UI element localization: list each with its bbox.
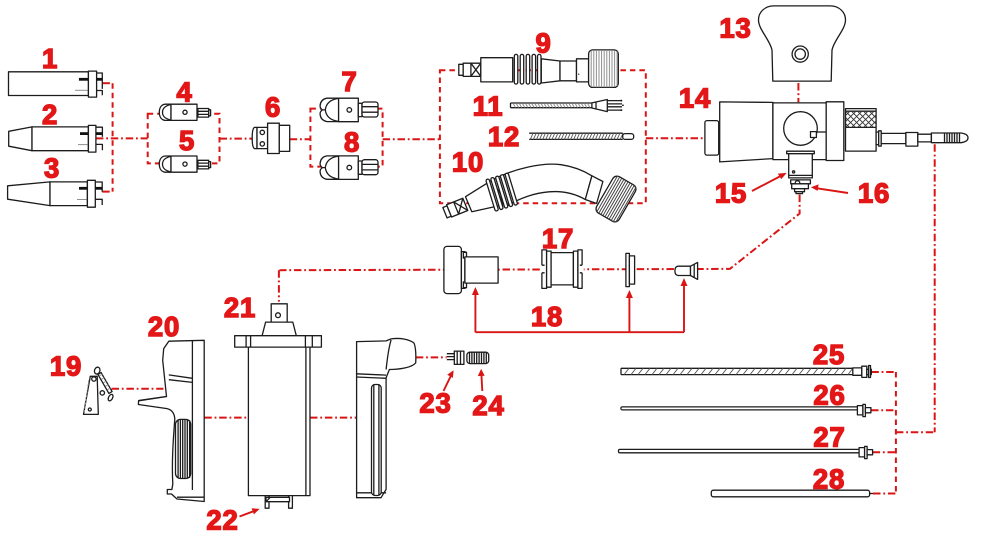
svg-text:25: 25 — [813, 339, 845, 370]
svg-text:8: 8 — [344, 126, 360, 157]
svg-text:21: 21 — [224, 292, 256, 323]
svg-text:22: 22 — [206, 505, 238, 533]
svg-text:15: 15 — [715, 178, 747, 209]
svg-text:4: 4 — [176, 77, 192, 108]
svg-text:6: 6 — [265, 91, 281, 122]
svg-text:5: 5 — [179, 125, 195, 156]
svg-text:11: 11 — [473, 91, 504, 122]
svg-text:7: 7 — [341, 66, 357, 97]
svg-text:14: 14 — [679, 83, 711, 114]
svg-text:3: 3 — [44, 153, 60, 184]
svg-text:13: 13 — [719, 12, 751, 43]
svg-text:23: 23 — [419, 388, 451, 419]
svg-text:9: 9 — [535, 28, 551, 59]
svg-text:18: 18 — [531, 301, 563, 332]
svg-text:16: 16 — [858, 178, 890, 209]
svg-text:19: 19 — [50, 351, 82, 382]
svg-text:27: 27 — [813, 422, 845, 453]
svg-text:28: 28 — [813, 463, 845, 494]
svg-text:26: 26 — [813, 380, 845, 411]
svg-text:17: 17 — [542, 223, 574, 254]
svg-text:20: 20 — [148, 311, 180, 342]
svg-text:12: 12 — [488, 121, 520, 152]
svg-text:10: 10 — [452, 147, 484, 178]
svg-text:24: 24 — [472, 390, 504, 421]
svg-text:2: 2 — [42, 99, 58, 130]
svg-text:1: 1 — [42, 43, 58, 74]
